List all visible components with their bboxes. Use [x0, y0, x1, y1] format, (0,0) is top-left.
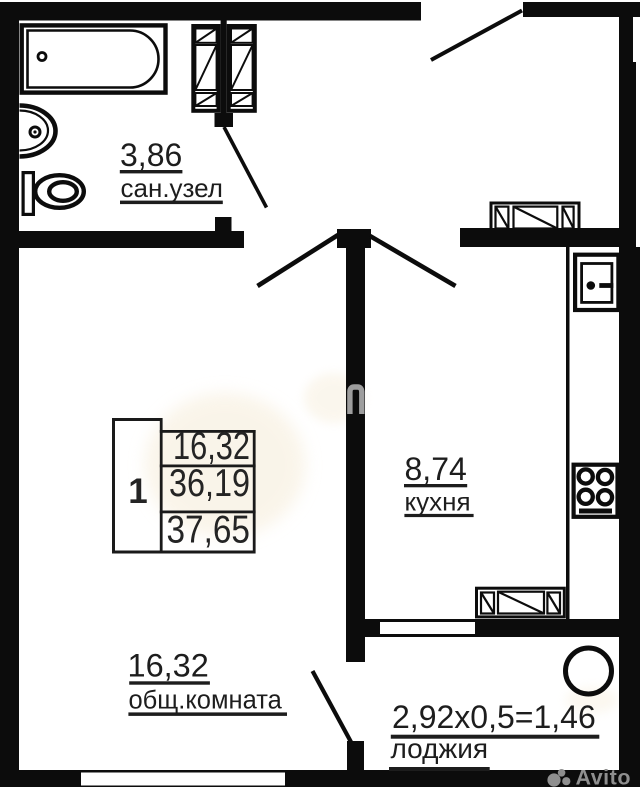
svg-text:16,32: 16,32: [128, 648, 209, 684]
svg-text:лоджия: лоджия: [391, 733, 489, 764]
svg-text:37,65: 37,65: [167, 509, 251, 552]
svg-text:8,74: 8,74: [405, 451, 467, 487]
svg-text:1: 1: [128, 472, 147, 511]
svg-text:36,19: 36,19: [169, 462, 250, 505]
svg-text:Avito: Avito: [576, 766, 631, 790]
svg-text:3,86: 3,86: [120, 137, 182, 173]
svg-text:общ.комната: общ.комната: [129, 687, 283, 715]
svg-text:сан.узел: сан.узел: [121, 173, 223, 203]
svg-text:2,92x0,5=1,46: 2,92x0,5=1,46: [392, 699, 596, 735]
svg-text:кухня: кухня: [405, 487, 471, 517]
